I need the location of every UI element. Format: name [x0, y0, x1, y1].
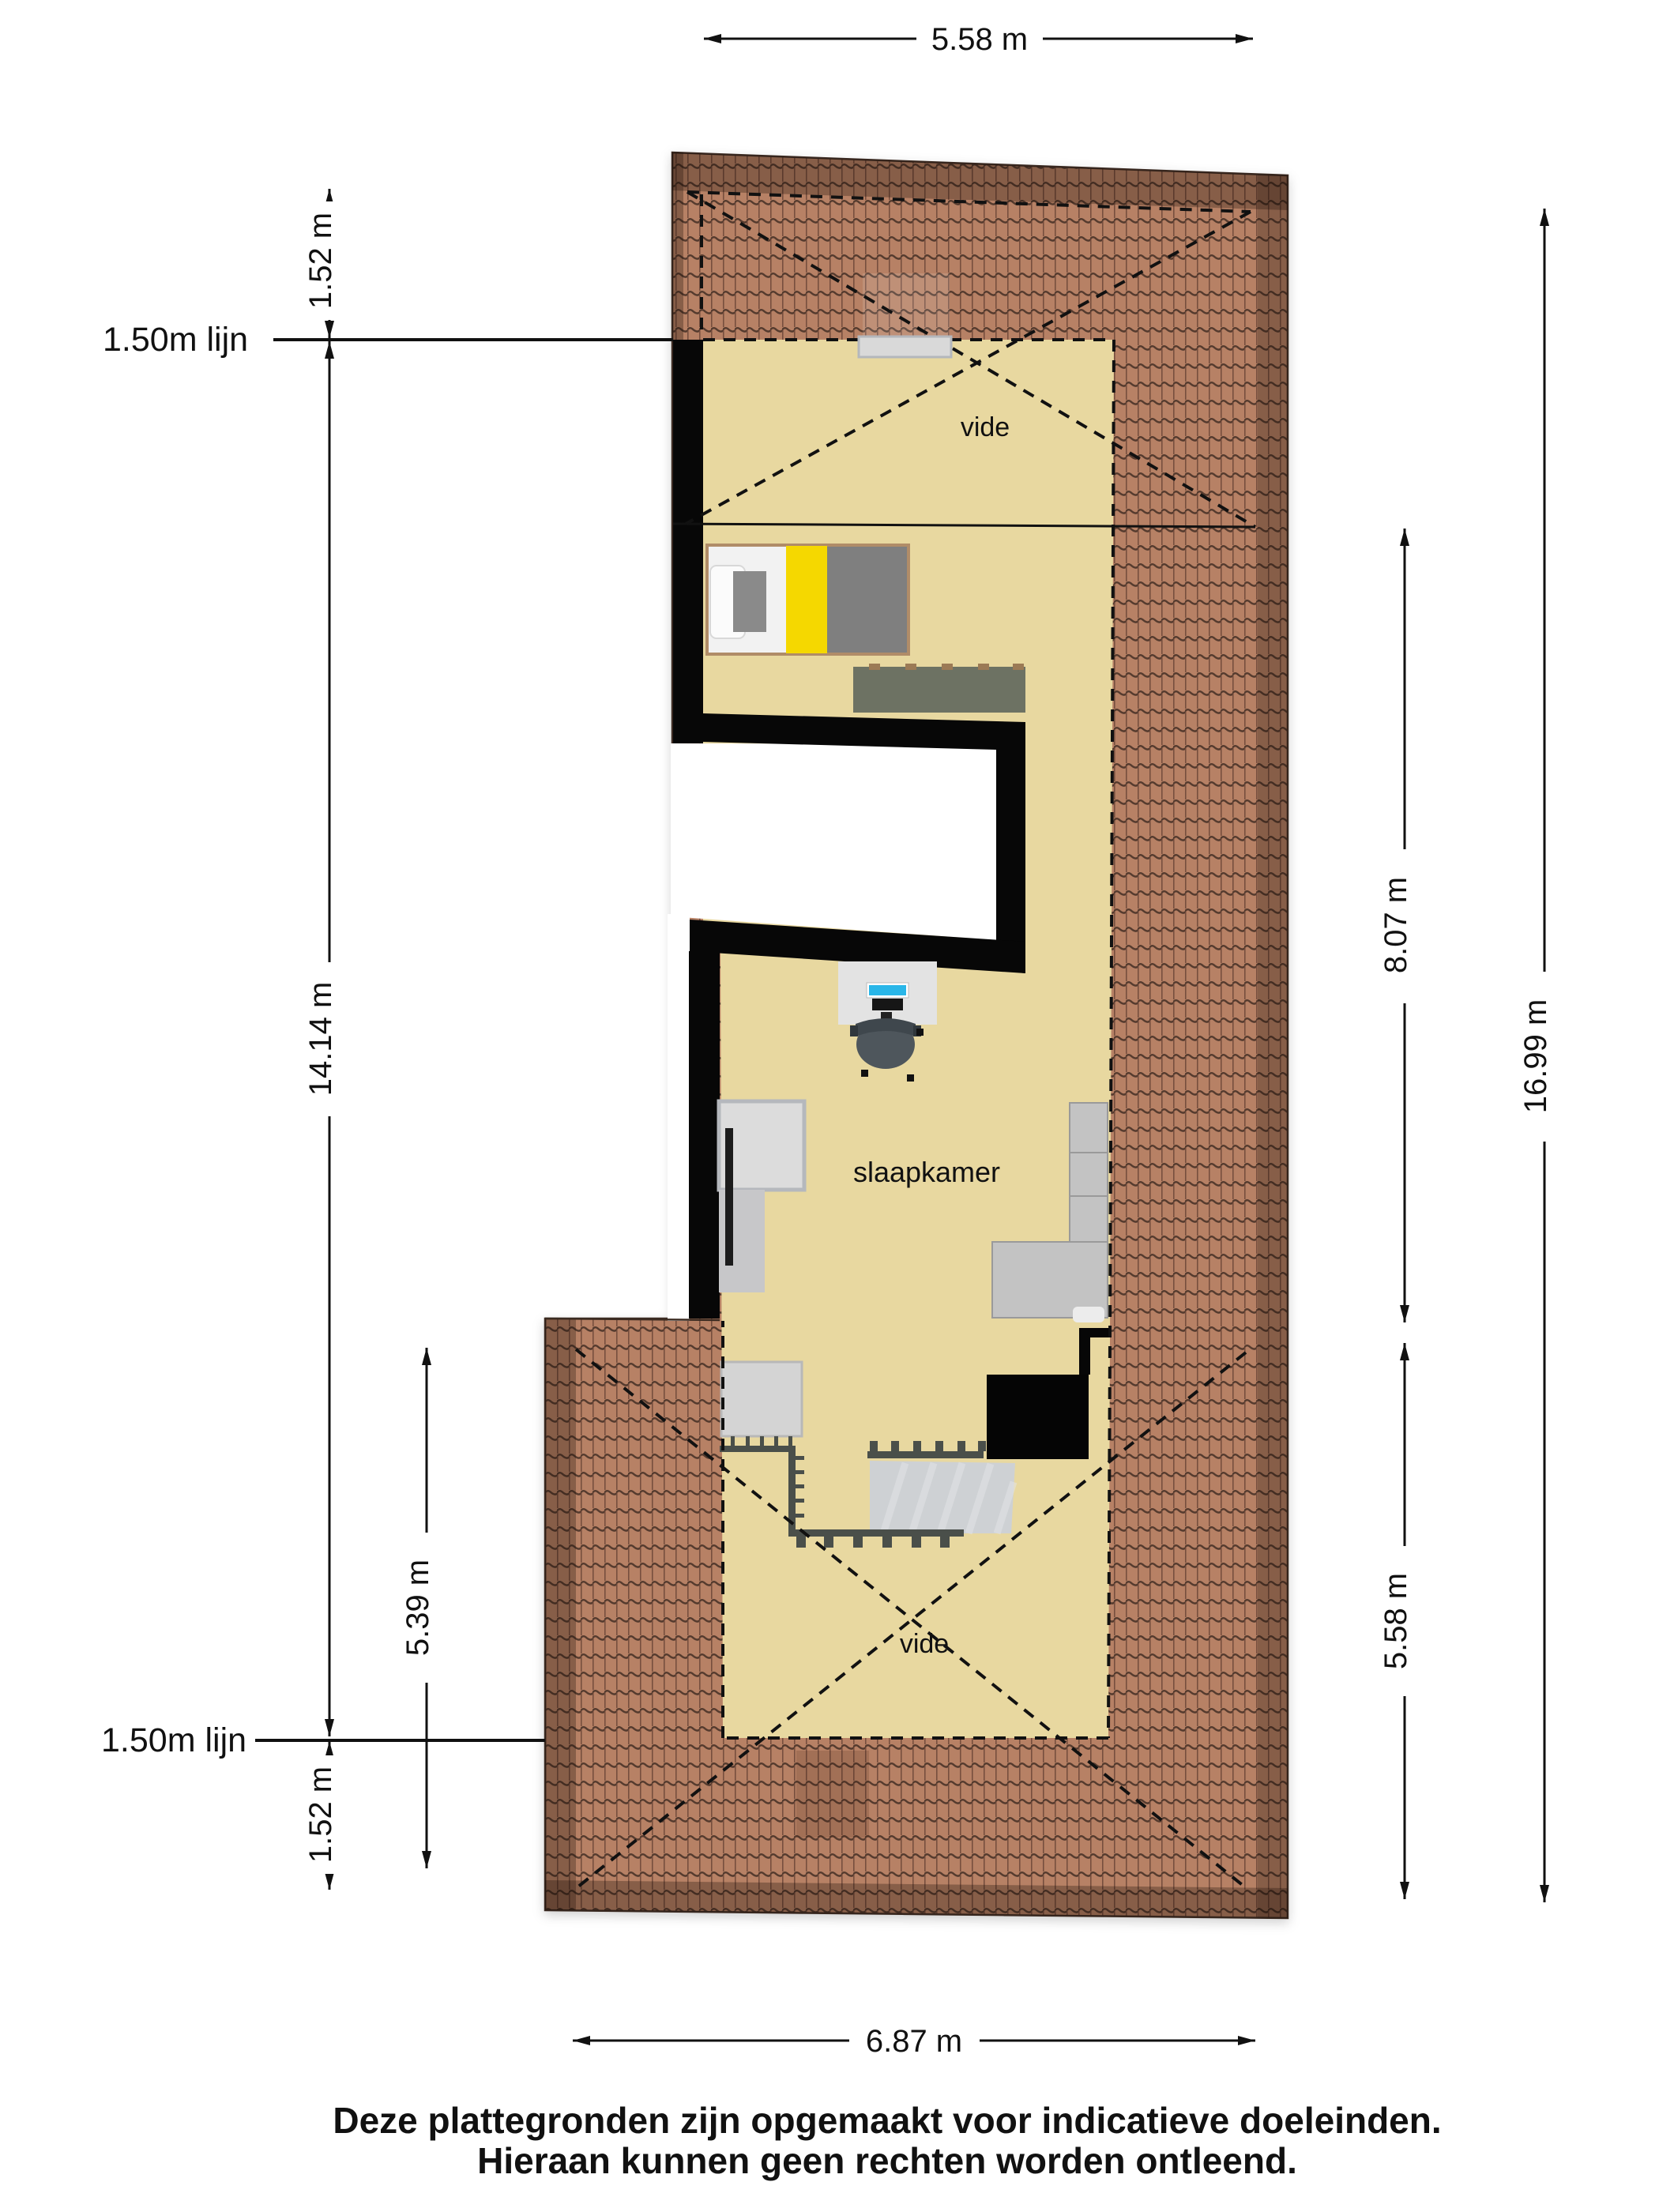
svg-text:6.87 m: 6.87 m	[866, 2024, 962, 2059]
svg-text:slaapkamer: slaapkamer	[853, 1156, 1000, 1188]
svg-text:vide: vide	[961, 412, 1010, 442]
svg-text:14.14 m: 14.14 m	[303, 982, 338, 1097]
svg-text:5.39 m: 5.39 m	[401, 1559, 435, 1656]
svg-text:1.50m lijn: 1.50m lijn	[103, 321, 248, 359]
svg-text:1.52 m: 1.52 m	[303, 213, 338, 309]
svg-text:8.07 m: 8.07 m	[1379, 877, 1413, 973]
svg-text:16.99 m: 16.99 m	[1518, 999, 1553, 1114]
svg-text:vide: vide	[900, 1629, 949, 1659]
svg-text:Hieraan kunnen geen rechten wo: Hieraan kunnen geen rechten worden ontle…	[477, 2140, 1297, 2181]
svg-text:1.52 m: 1.52 m	[303, 1766, 338, 1863]
svg-text:5.58 m: 5.58 m	[1379, 1573, 1413, 1669]
svg-text:5.58 m: 5.58 m	[931, 22, 1028, 57]
svg-text:1.50m lijn: 1.50m lijn	[101, 1721, 246, 1759]
svg-text:Deze plattegronden zijn opgema: Deze plattegronden zijn opgemaakt voor i…	[333, 2100, 1441, 2141]
